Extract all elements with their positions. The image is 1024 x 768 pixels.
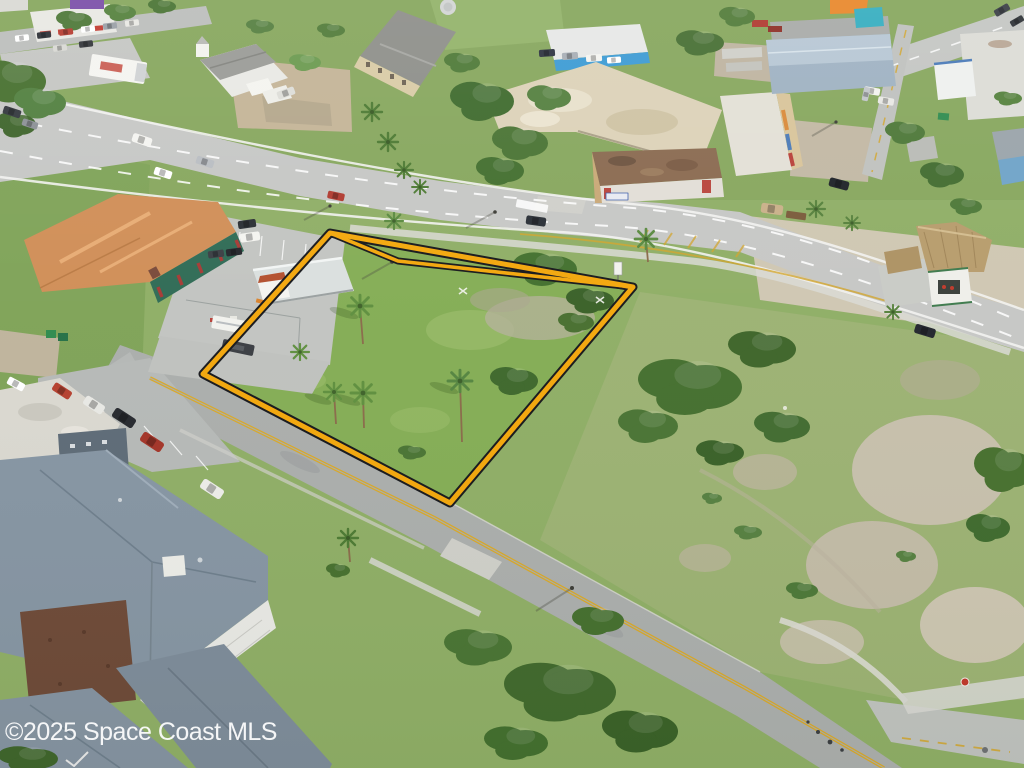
aerial-photo: ©2025 Space Coast MLS [0,0,1024,768]
aerial-photo-canvas [0,0,1024,768]
photo-haze [0,0,1024,768]
watermark-text: ©2025 Space Coast MLS [5,718,277,747]
